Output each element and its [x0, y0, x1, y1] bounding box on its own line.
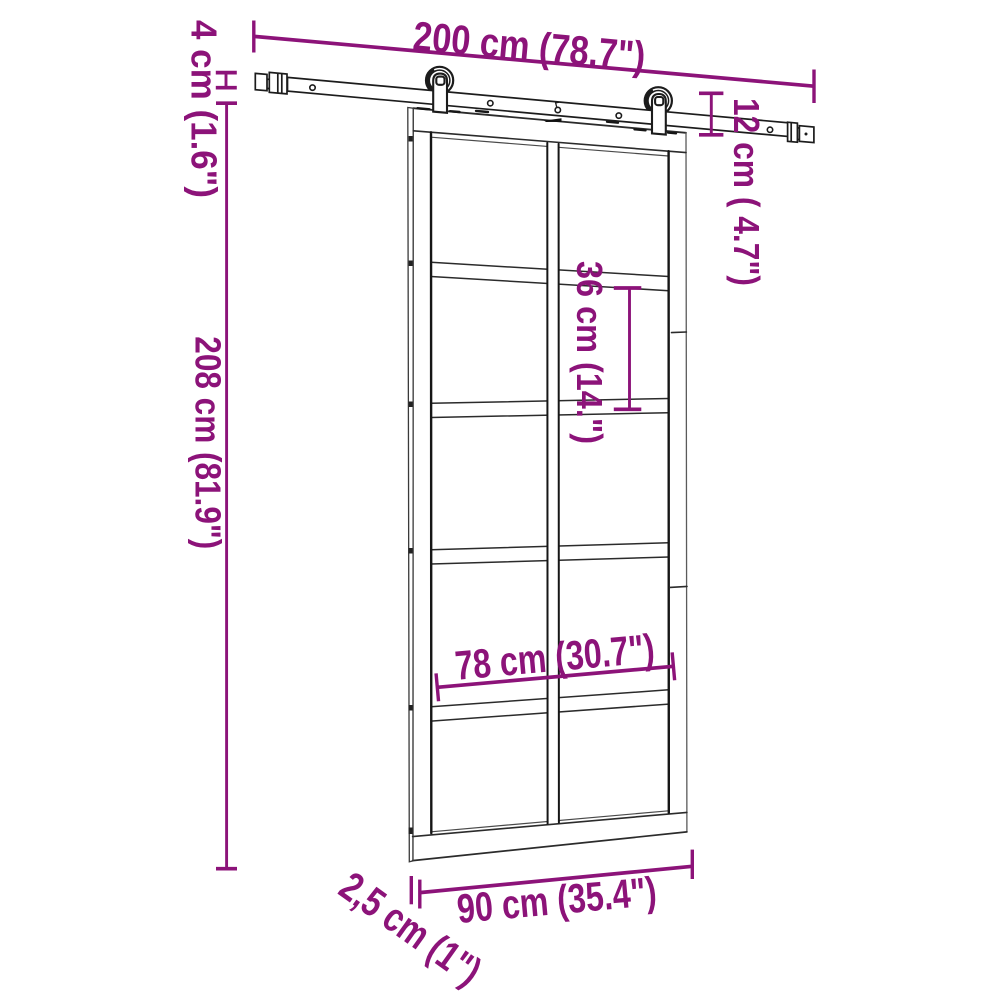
svg-text:12 cm ( 4.7"): 12 cm ( 4.7"): [726, 98, 767, 286]
svg-text:36 cm (14."): 36 cm (14."): [569, 261, 610, 444]
svg-text:208 cm (81.9"): 208 cm (81.9"): [188, 336, 229, 549]
svg-text:4 cm (1.6"): 4 cm (1.6"): [184, 20, 225, 198]
